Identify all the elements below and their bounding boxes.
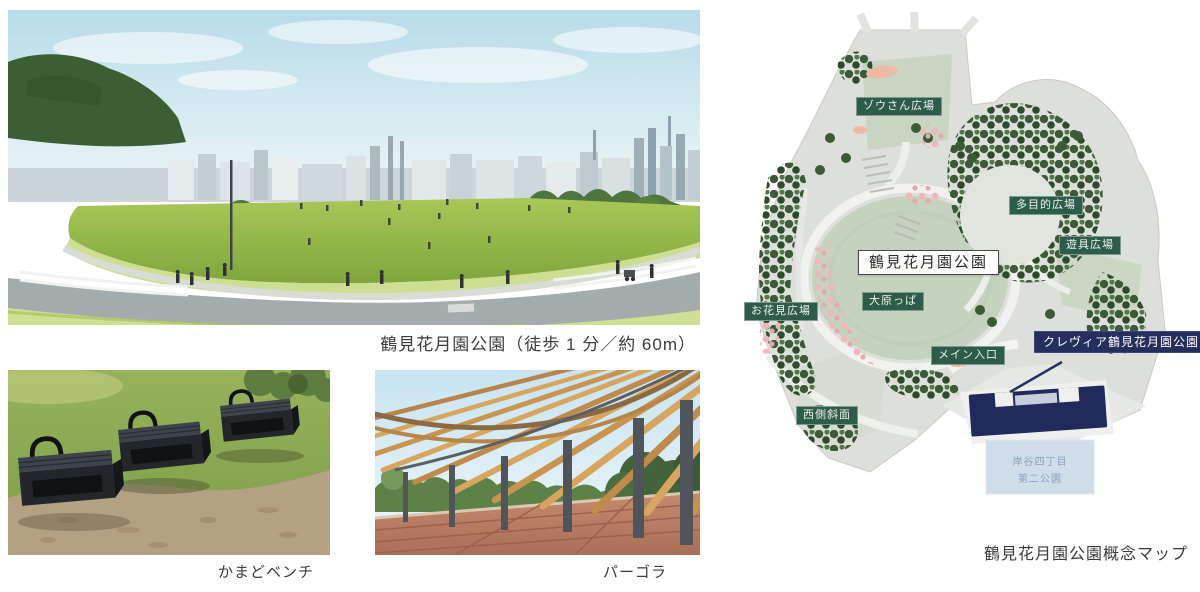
kamado-bench-photo [8, 370, 330, 555]
map-caption: 鶴見花月園公園概念マップ [930, 540, 1188, 564]
map-label-hanami-plaza: お花見広場 [744, 302, 818, 321]
map-label-playground-plaza: 遊具広場 [1059, 236, 1121, 255]
concept-map: ゾウさん広場 多目的広場 遊具広場 お花見広場 鶴見花月園公園 大原っぱ メイン… [710, 10, 1190, 530]
bench-photo-caption: かまどベンチ [218, 561, 314, 582]
pergola-photo-caption: パーゴラ [603, 561, 667, 582]
map-label-zou-plaza: ゾウさん広場 [856, 97, 942, 116]
park-panorama-illustration [8, 10, 700, 325]
pergola-photo [375, 370, 700, 555]
park-panorama-photo [8, 10, 700, 325]
main-photo-caption: 鶴見花月園公園（徒歩 1 分／約 60m） [8, 330, 700, 355]
pergola-illustration [375, 370, 700, 555]
page: 鶴見花月園公園（徒歩 1 分／約 60m） [0, 0, 1200, 592]
map-label-oharappa: 大原っぱ [862, 292, 924, 311]
light-pole [230, 160, 233, 270]
kamado-bench-illustration [8, 370, 330, 555]
adjacent-park-line1: 岸谷四丁目 [988, 454, 1092, 471]
map-label-property-name: クレヴィア鶴見花月園公園 [1034, 331, 1200, 353]
map-label-park-name: 鶴見花月園公園 [858, 250, 999, 275]
map-label-main-entrance: メイン入口 [931, 346, 1005, 365]
map-label-west-slope: 西側斜面 [796, 406, 858, 425]
map-label-multipurpose-plaza: 多目的広場 [1009, 196, 1083, 215]
map-label-adjacent-park: 岸谷四丁目 第二公園 [988, 454, 1092, 488]
adjacent-park-line2: 第二公園 [988, 471, 1092, 488]
